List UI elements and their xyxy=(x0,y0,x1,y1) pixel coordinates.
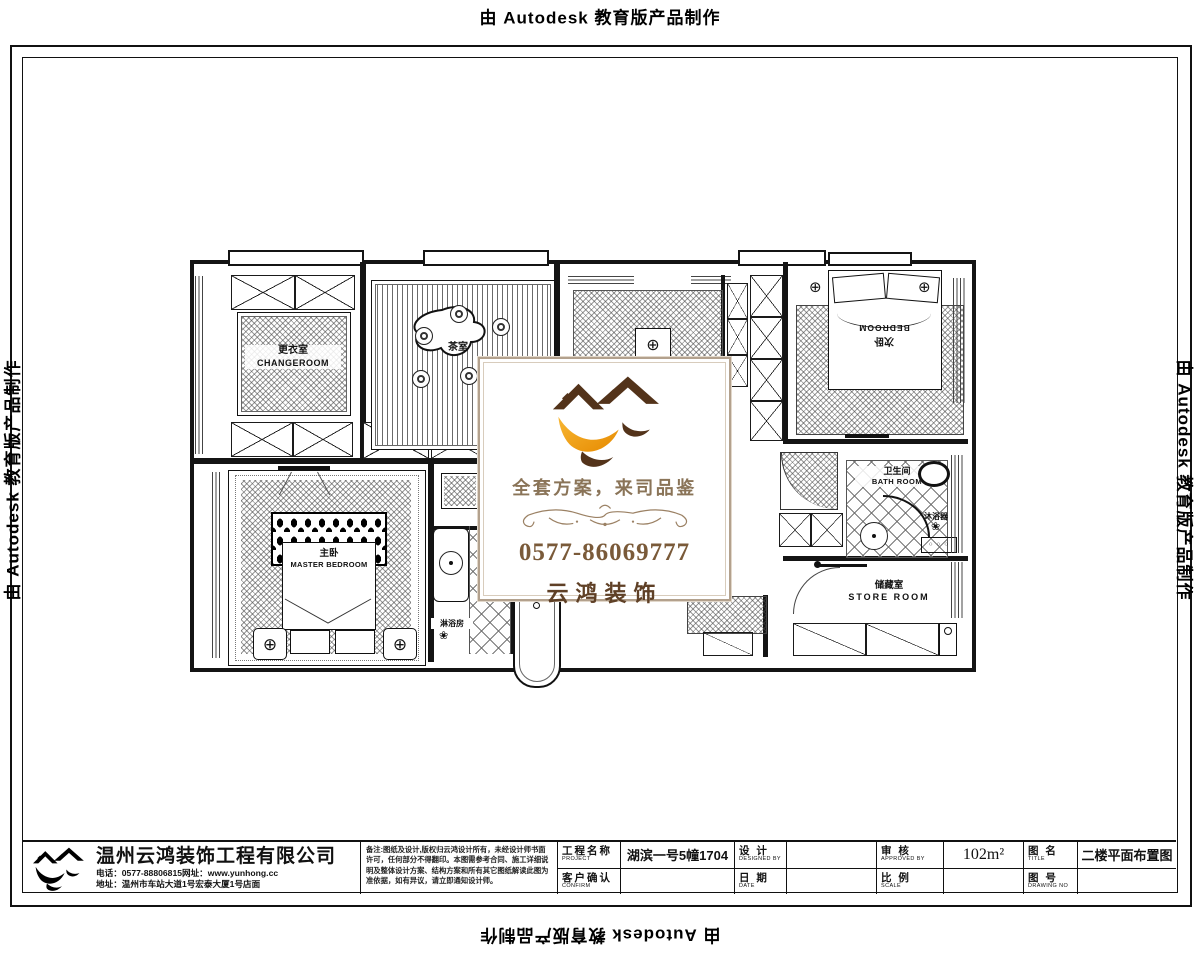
storeroom-label: 储藏室 STORE ROOM xyxy=(829,580,949,603)
project-label-col: 工程名称 PROJECT 客户确认 CONFIRM xyxy=(557,842,620,894)
master-label-en: MASTER BEDROOM xyxy=(283,560,375,569)
wardrobe-cabinet xyxy=(750,359,783,401)
project-label-en: PROJECT xyxy=(562,857,590,863)
shower-flower-icon: ❀ xyxy=(439,631,448,642)
autodesk-watermark-top: 由 Autodesk 教育版产品制作 xyxy=(480,4,721,29)
date-label-en: DATE xyxy=(739,884,755,890)
autodesk-watermark-left: 由 Autodesk 教育版产品制作 xyxy=(0,360,24,601)
design-label-col: 设 计 DESIGNED BY 日 期 DATE xyxy=(734,842,786,894)
vanity-sink xyxy=(439,551,463,575)
lamp-icon: ⊕ xyxy=(393,636,407,653)
stair-flight xyxy=(703,632,753,656)
bed-bench xyxy=(290,630,330,654)
stamp-brand: 云鸿装饰 xyxy=(484,576,725,608)
design-value xyxy=(787,842,876,868)
tv-console xyxy=(845,434,889,438)
wardrobe-cabinet xyxy=(231,422,293,457)
design-value-col xyxy=(786,842,876,894)
date-value xyxy=(787,868,876,895)
company-name: 温州云鸿装饰工程有限公司 xyxy=(96,846,336,868)
project-value-col: 湖滨一号5幢1704 xyxy=(620,842,734,894)
company-phone-line: 电话：0577-88806815网址：www.yunhong.cc xyxy=(96,868,336,879)
window-bay xyxy=(738,250,826,266)
wardrobe-cabinet xyxy=(750,317,783,359)
tea-stool xyxy=(450,305,468,323)
stamp-slogan: 全套方案，来司品鉴 xyxy=(484,474,725,500)
changeroom-label-en: CHANGEROOM xyxy=(245,358,341,369)
company-cell: 温州云鸿装饰工程有限公司 电话：0577-88806815网址：www.yunh… xyxy=(22,842,360,894)
storeroom-label-en: STORE ROOM xyxy=(829,592,949,603)
autodesk-watermark-right: 由 Autodesk 教育版产品制作 xyxy=(1174,360,1199,601)
bathroom-sink xyxy=(860,522,888,550)
window-bay xyxy=(228,250,364,266)
drawno-value xyxy=(1078,868,1176,895)
scale-value xyxy=(944,868,1023,895)
wardrobe-cabinet xyxy=(293,422,353,457)
scale-label-en: SCALE xyxy=(881,884,901,890)
bedroom2-label-cn: 次卧 xyxy=(837,334,931,347)
stamp-phone: 0577-86069777 xyxy=(484,539,725,567)
window-strip xyxy=(212,472,221,658)
storeroom-door-leaf xyxy=(819,564,867,567)
shower-flower-icon: ❀ xyxy=(931,522,940,533)
flourish-ornament-icon xyxy=(507,502,703,530)
window-bay xyxy=(828,252,912,266)
company-address-line: 地址：温州市车站大道1号宏泰大厦1号店面 xyxy=(96,879,336,890)
wardrobe-cabinet xyxy=(231,275,295,310)
project-value: 湖滨一号5幢1704 xyxy=(621,842,734,868)
approve-label-en: APPROVED BY xyxy=(881,857,925,863)
title-label-col: 图 名 TITLE 图 号 DRAWING NO xyxy=(1023,842,1077,894)
storeroom-label-cn: 储藏室 xyxy=(829,580,949,592)
bedroom2-label-en: BEDROOM xyxy=(837,323,931,334)
wardrobe-cabinet xyxy=(727,319,748,355)
autodesk-watermark-bottom: 由 Autodesk 教育版产品制作 xyxy=(480,925,721,950)
window-bay xyxy=(423,250,549,266)
wardrobe-cabinet xyxy=(750,275,783,317)
corner-shower-fan xyxy=(781,453,837,509)
drawno-label-en: DRAWING NO xyxy=(1028,884,1068,890)
vanity xyxy=(433,528,469,602)
approve-label-col: 审 核 APPROVED BY 比 例 SCALE xyxy=(876,842,943,894)
tea-stool xyxy=(492,318,510,336)
wall xyxy=(783,262,788,442)
store-shelf xyxy=(793,623,867,656)
confirm-value xyxy=(621,868,734,895)
master-door-leaf xyxy=(278,466,330,471)
nightstand: ⊕ xyxy=(383,628,417,660)
master-bed: 主卧 MASTER BEDROOM xyxy=(282,542,376,630)
wardrobe-cabinet xyxy=(779,513,811,547)
wall xyxy=(783,439,968,444)
wardrobe-cabinet xyxy=(295,275,355,310)
tea-stool xyxy=(415,327,433,345)
window-strip xyxy=(568,275,634,284)
tearoom-label: 茶室 xyxy=(435,338,481,353)
confirm-label-en: CONFIRM xyxy=(562,884,590,890)
corner-shower xyxy=(780,452,838,510)
bedroom2-label: 次卧 BEDROOM xyxy=(837,323,931,346)
title-label-en: TITLE xyxy=(1028,857,1045,863)
changeroom-label-cn: 更衣室 xyxy=(245,345,341,358)
blanket-fold xyxy=(283,597,373,627)
stamp-inner-frame: 全套方案，来司品鉴 0577-86069777 云鸿装饰 xyxy=(483,362,726,596)
drawing-title-value: 二楼平面布置图 xyxy=(1078,842,1176,868)
notes-cell: 备注:图纸及设计,版权归云鸿设计所有，未经设计师书面许可，任何部分不得翻印。本图… xyxy=(360,842,557,894)
title-block: 温州云鸿装饰工程有限公司 电话：0577-88806815网址：www.yunh… xyxy=(22,840,1176,894)
decorator-stamp: 全套方案，来司品鉴 0577-86069777 云鸿装饰 xyxy=(478,357,731,601)
area-value: 102m² xyxy=(944,842,1023,868)
window-strip xyxy=(951,455,963,553)
window-strip xyxy=(953,278,965,403)
approve-value-col: 102m² xyxy=(943,842,1023,894)
changeroom-label: 更衣室 CHANGEROOM xyxy=(245,345,341,369)
window-strip xyxy=(195,276,205,454)
duct-niche xyxy=(441,473,479,509)
toilet xyxy=(918,461,950,487)
yunhong-logo-black-icon xyxy=(26,845,90,891)
nightstand: ⊕ xyxy=(253,628,287,660)
wardrobe-cabinet xyxy=(811,513,843,547)
store-cabinet xyxy=(939,623,957,656)
wardrobe-cabinet xyxy=(727,283,748,319)
window-strip xyxy=(951,562,963,618)
master-label-cn: 主卧 xyxy=(283,548,375,560)
ceiling-light-icon: ⊕ xyxy=(646,338,659,354)
ceiling-light-icon: ⊕ xyxy=(918,280,931,295)
lamp-icon: ⊕ xyxy=(263,636,277,653)
shower-label: 淋浴房 xyxy=(431,618,473,629)
store-shelf xyxy=(865,623,939,656)
window-strip xyxy=(691,275,731,284)
bed-bench xyxy=(335,630,375,654)
yunhong-logo-icon xyxy=(544,371,666,467)
design-label-en: DESIGNED BY xyxy=(739,857,781,863)
wardrobe-cabinet xyxy=(750,401,783,441)
title-value-col: 二楼平面布置图 xyxy=(1077,842,1176,894)
tea-stool xyxy=(460,367,478,385)
tea-stool xyxy=(412,370,430,388)
ceiling-light-icon: ⊕ xyxy=(809,280,822,295)
master-label: 主卧 MASTER BEDROOM xyxy=(283,548,375,569)
